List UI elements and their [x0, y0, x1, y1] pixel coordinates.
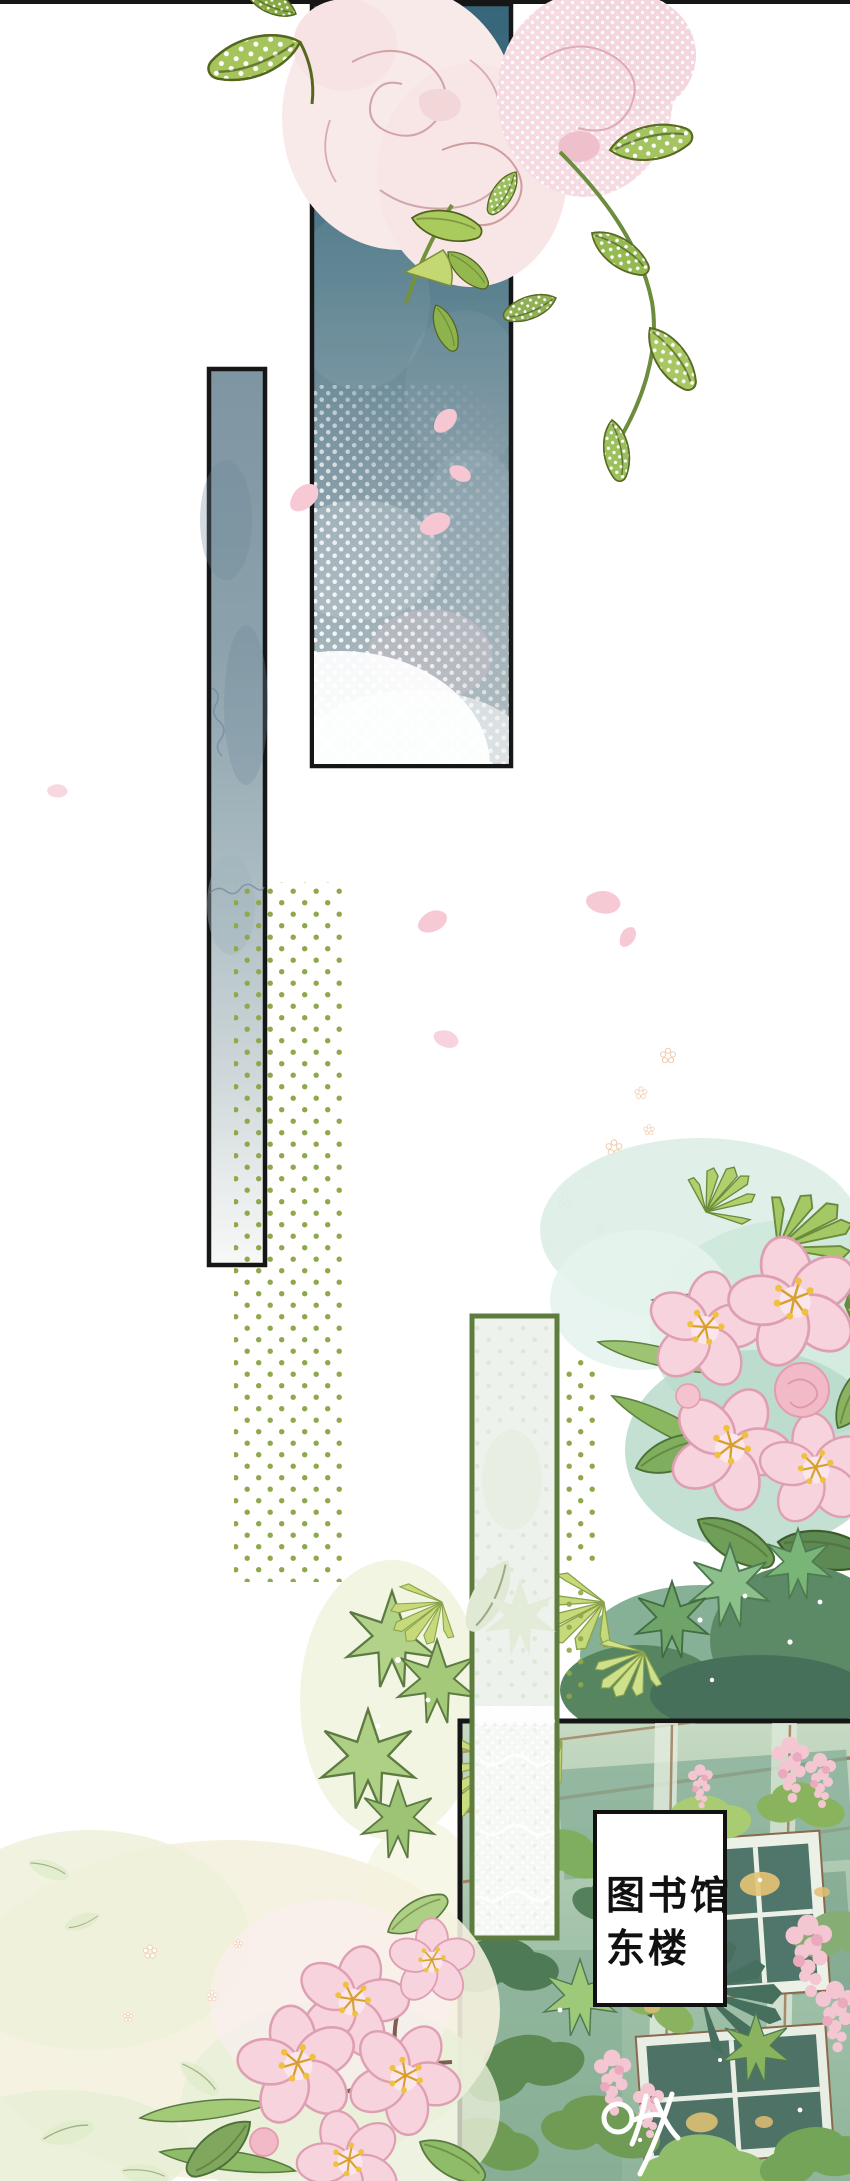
library-sign-box: 图书馆 东楼: [593, 1810, 727, 2007]
halftone-rose: [497, 0, 696, 197]
comic-page: 图书馆 东楼: [0, 0, 850, 2181]
flower-bud: [250, 2128, 278, 2156]
rose-bud: [775, 1363, 829, 1417]
white-halftone-fade: [314, 385, 509, 764]
green-strip-panel: [456, 1316, 557, 1938]
olive-dots-strip: [563, 1588, 589, 1700]
olive-halftone-field: [234, 882, 344, 1582]
sign-line-2: 东楼: [606, 1923, 723, 1976]
sign-line-1: 图书馆: [606, 1870, 723, 1923]
olive-dots-strip: [565, 1355, 599, 1565]
